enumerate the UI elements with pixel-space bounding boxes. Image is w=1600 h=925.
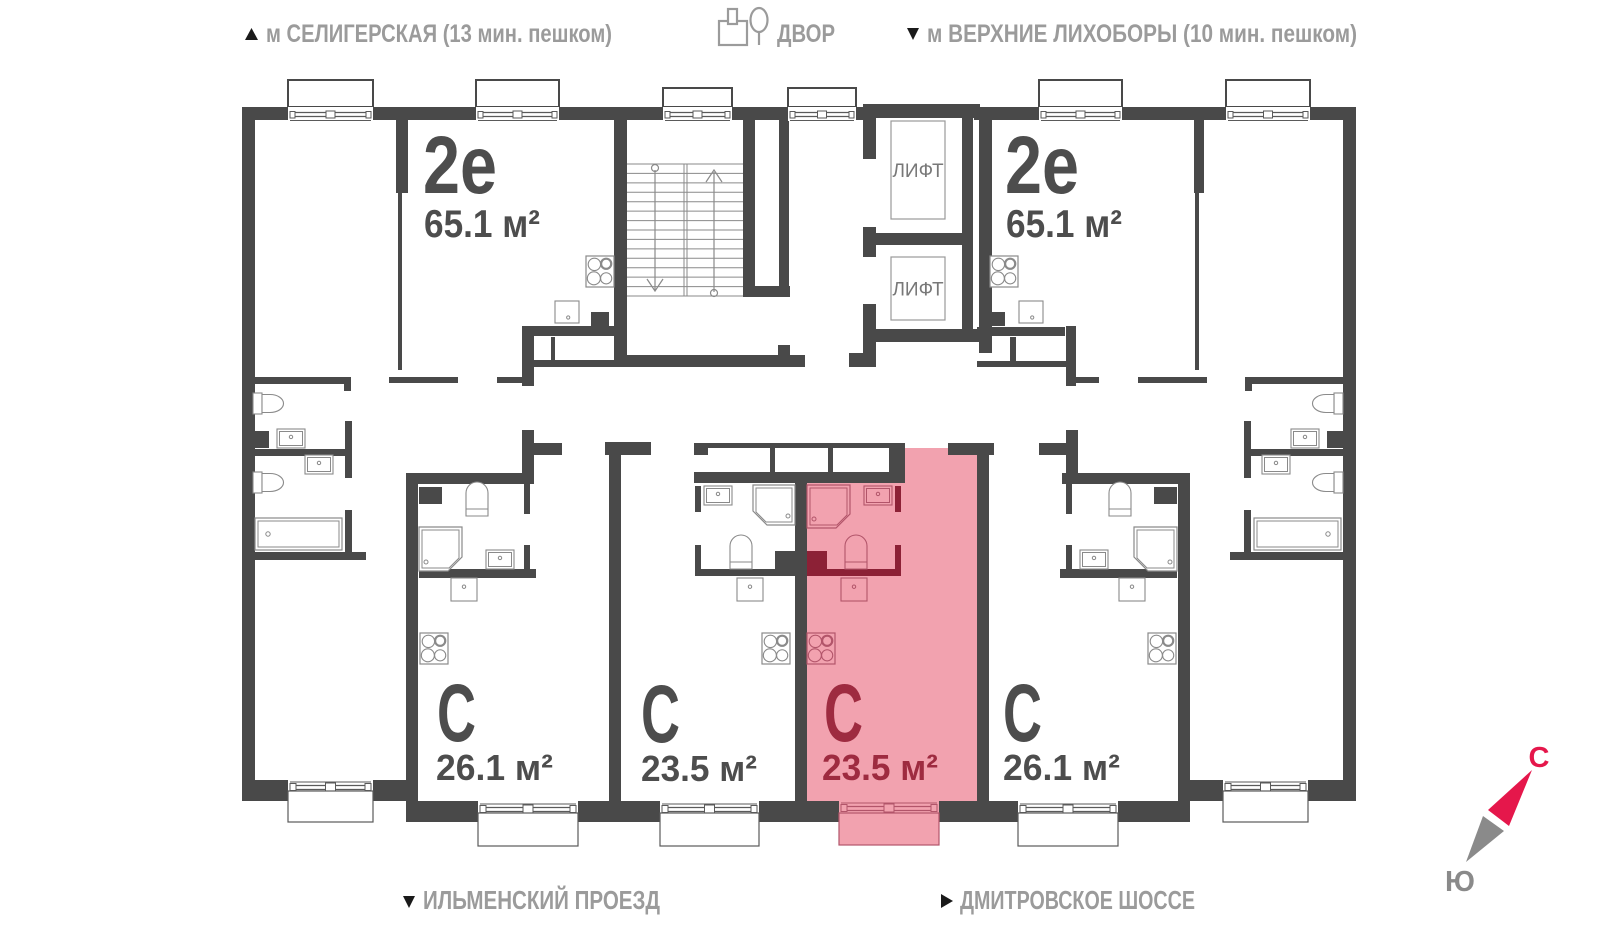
svg-text:ДМИТРОВСКОЕ ШОССЕ: ДМИТРОВСКОЕ ШОССЕ — [960, 885, 1195, 915]
svg-text:С: С — [824, 668, 863, 759]
svg-text:26.1 м²: 26.1 м² — [1003, 747, 1120, 788]
svg-text:26.1 м²: 26.1 м² — [436, 747, 553, 788]
svg-text:ЛИФТ: ЛИФТ — [892, 280, 944, 301]
svg-text:ЛИФТ: ЛИФТ — [892, 161, 944, 182]
svg-text:Ю: Ю — [1445, 866, 1475, 898]
svg-text:2е: 2е — [423, 120, 497, 211]
svg-text:65.1 м²: 65.1 м² — [424, 203, 540, 246]
svg-text:С: С — [1003, 668, 1042, 759]
svg-text:65.1 м²: 65.1 м² — [1006, 203, 1122, 246]
svg-text:С: С — [437, 668, 476, 759]
svg-text:23.5 м²: 23.5 м² — [641, 748, 757, 789]
svg-text:С: С — [1529, 742, 1550, 774]
svg-text:м ВЕРХНИЕ ЛИХОБОРЫ (10 мин. пе: м ВЕРХНИЕ ЛИХОБОРЫ (10 мин. пешком) — [927, 20, 1357, 48]
svg-text:ИЛЬМЕНСКИЙ ПРОЕЗД: ИЛЬМЕНСКИЙ ПРОЕЗД — [423, 885, 660, 915]
svg-text:ДВОР: ДВОР — [777, 20, 835, 48]
svg-text:С: С — [641, 669, 680, 760]
svg-text:м СЕЛИГЕРСКАЯ (13 мин. пешком): м СЕЛИГЕРСКАЯ (13 мин. пешком) — [266, 20, 612, 48]
svg-text:2е: 2е — [1005, 120, 1079, 211]
svg-text:23.5 м²: 23.5 м² — [822, 747, 938, 788]
